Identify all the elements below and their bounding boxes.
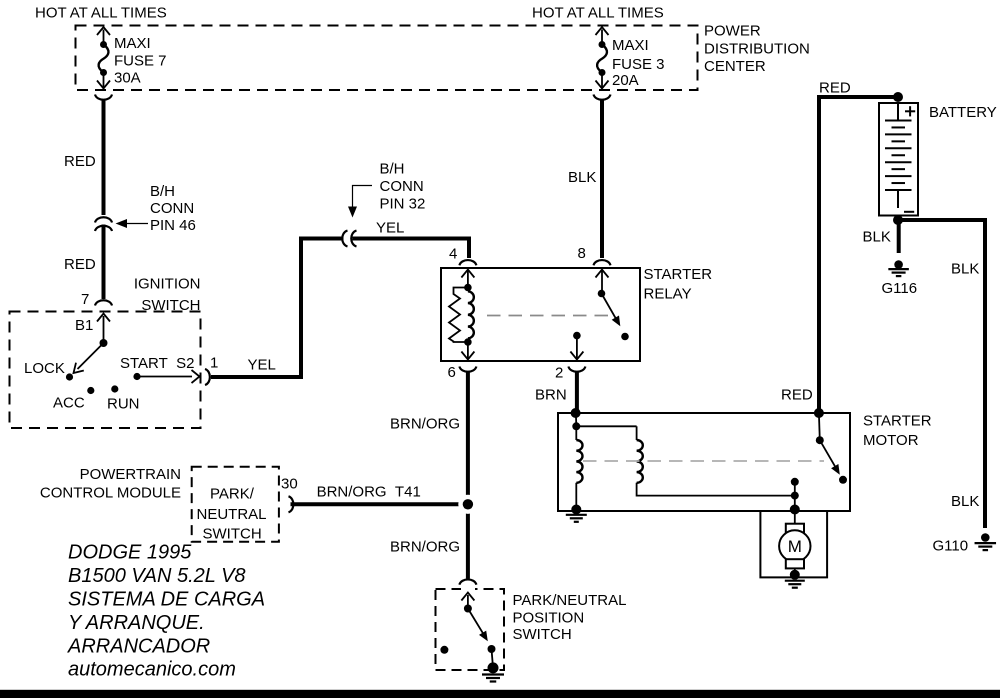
svg-text:SWITCH: SWITCH <box>513 626 572 643</box>
svg-text:CONN: CONN <box>150 200 194 217</box>
svg-text:BRN/ORG: BRN/ORG <box>390 416 460 433</box>
svg-text:POSITION: POSITION <box>513 609 585 626</box>
svg-text:30A: 30A <box>114 70 141 87</box>
svg-text:IGNITION: IGNITION <box>134 276 201 293</box>
svg-text:DODGE 1995: DODGE 1995 <box>68 541 192 563</box>
svg-text:PIN 46: PIN 46 <box>150 217 196 234</box>
svg-text:G110: G110 <box>933 538 969 555</box>
svg-text:B/H: B/H <box>150 183 175 200</box>
svg-text:4: 4 <box>449 246 457 263</box>
svg-text:CONN: CONN <box>380 178 424 195</box>
svg-text:RED: RED <box>64 256 96 273</box>
svg-text:BLK: BLK <box>863 229 891 246</box>
svg-text:PIN 32: PIN 32 <box>380 196 426 213</box>
svg-text:SISTEMA DE CARGA: SISTEMA DE CARGA <box>68 588 265 610</box>
svg-text:STARTER: STARTER <box>863 413 932 430</box>
svg-text:CONTROL MODULE: CONTROL MODULE <box>40 485 181 502</box>
svg-text:SWITCH: SWITCH <box>141 297 200 314</box>
svg-text:6: 6 <box>448 364 456 381</box>
svg-text:HOT AT ALL TIMES: HOT AT ALL TIMES <box>35 5 167 22</box>
svg-text:2: 2 <box>555 365 563 382</box>
svg-text:BRN/ORG: BRN/ORG <box>390 538 460 555</box>
svg-text:BATTERY: BATTERY <box>929 104 997 121</box>
svg-text:DISTRIBUTION: DISTRIBUTION <box>704 40 810 57</box>
svg-text:CENTER: CENTER <box>704 58 766 75</box>
svg-text:7: 7 <box>81 291 89 308</box>
svg-text:ARRANCADOR: ARRANCADOR <box>67 635 210 657</box>
svg-text:YEL: YEL <box>248 357 276 374</box>
svg-text:HOT AT ALL TIMES: HOT AT ALL TIMES <box>532 5 664 22</box>
svg-text:LOCK: LOCK <box>24 360 65 377</box>
svg-text:PARK/NEUTRAL: PARK/NEUTRAL <box>513 592 627 609</box>
svg-text:NEUTRAL: NEUTRAL <box>197 506 267 523</box>
svg-text:BLK: BLK <box>568 169 596 186</box>
svg-text:automecanico.com: automecanico.com <box>68 658 236 680</box>
svg-text:B/H: B/H <box>380 161 405 178</box>
svg-text:BLK: BLK <box>951 493 979 510</box>
svg-text:BLK: BLK <box>951 261 979 278</box>
svg-text:FUSE 7: FUSE 7 <box>114 53 167 70</box>
svg-text:BRN: BRN <box>535 387 567 404</box>
svg-text:POWERTRAIN: POWERTRAIN <box>80 466 181 483</box>
svg-text:20A: 20A <box>612 72 639 89</box>
svg-text:B1: B1 <box>75 317 93 334</box>
svg-text:POWER: POWER <box>704 23 761 40</box>
svg-text:M: M <box>788 537 802 556</box>
svg-text:RUN: RUN <box>107 396 140 413</box>
svg-text:MAXI: MAXI <box>114 35 151 52</box>
svg-text:MOTOR: MOTOR <box>863 432 919 449</box>
svg-text:1: 1 <box>210 355 218 372</box>
svg-text:RED: RED <box>819 80 851 97</box>
svg-text:YEL: YEL <box>376 220 404 237</box>
svg-text:START S2: START S2 <box>120 355 194 372</box>
svg-text:Y ARRANQUE.: Y ARRANQUE. <box>68 612 205 634</box>
svg-text:ACC: ACC <box>53 395 85 412</box>
svg-text:30: 30 <box>281 476 298 493</box>
svg-text:BRN/ORG T41: BRN/ORG T41 <box>317 484 421 501</box>
svg-text:SWITCH: SWITCH <box>203 526 262 543</box>
svg-text:B1500 VAN 5.2L V8: B1500 VAN 5.2L V8 <box>68 565 246 587</box>
svg-text:MAXI: MAXI <box>612 37 649 54</box>
svg-text:PARK/: PARK/ <box>210 486 255 503</box>
svg-text:RED: RED <box>781 387 813 404</box>
svg-text:RED: RED <box>64 153 96 170</box>
svg-text:RELAY: RELAY <box>644 286 692 303</box>
svg-text:8: 8 <box>578 245 586 262</box>
svg-text:G116: G116 <box>882 280 918 297</box>
svg-text:FUSE 3: FUSE 3 <box>612 56 665 73</box>
svg-text:STARTER: STARTER <box>644 266 713 283</box>
